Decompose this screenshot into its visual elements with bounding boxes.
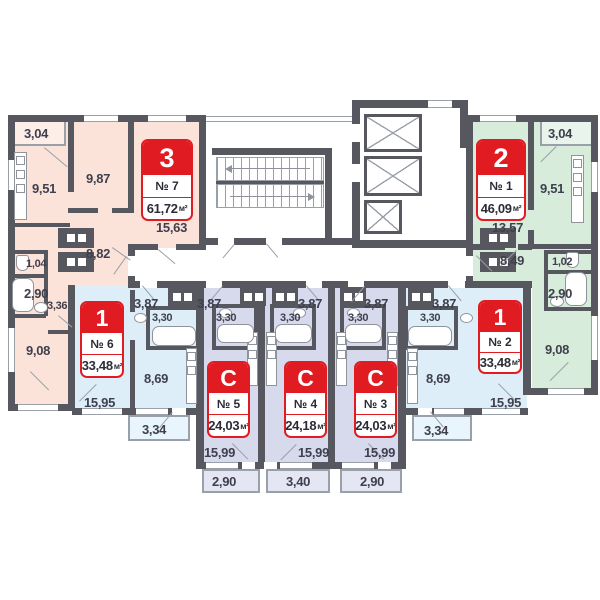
kitchen-counter [14,152,27,220]
wall [8,223,70,227]
bathtub [217,324,254,343]
window [434,408,464,415]
apartment-type: 1 [82,303,122,333]
canopy-line [206,121,352,122]
area-label-living-a4: 15,99 [298,446,329,459]
area-value: 33,48 [82,358,113,373]
wall [48,330,70,334]
area-unit: м² [512,357,521,367]
wall [212,148,327,155]
door-swing [158,249,176,264]
door-gap [466,256,473,276]
vent-shaft [58,228,94,248]
bathtub [408,326,452,346]
door-swing [266,243,279,258]
area-label-corr-a7: 3,36 [47,301,67,312]
area-label-hall-a5: 3,87 [197,297,221,310]
apartment-card-3[interactable]: С № 3 24,03м² [354,361,397,438]
apartment-area: 24,03м² [356,415,395,436]
wall [325,148,332,245]
elevator-shaft-3 [364,200,402,234]
apartment-area: 33,48м² [480,353,520,373]
floor-plan: 3,04 9,51 9,87 15,63 8,82 1,04 2,90 3,36… [0,0,600,600]
balcony-door-gap [242,462,255,469]
wall [544,250,548,310]
apartment-type: С [286,363,325,393]
area-unit: м² [240,421,249,431]
balcony-door-gap [378,462,391,469]
window [148,115,186,122]
stair-arrow-down [230,196,308,197]
area-label-kitchen-a2: 8,69 [426,372,450,385]
area-label-hall-a1: 8,49 [500,254,524,267]
canopy-line [206,116,352,117]
wall [130,340,135,408]
area-label-hall-a7: 8,82 [86,247,110,260]
apartment-number: № 3 [356,393,395,415]
apartment-card-4[interactable]: С № 4 24,18м² [284,361,327,438]
apartment-number: № 7 [143,175,191,198]
washbasin [134,313,147,323]
area-label-balcony-a2: 3,34 [424,424,448,437]
wall [328,283,335,464]
apartment-area: 33,48м² [82,355,122,376]
elevator-shaft-2 [364,156,422,196]
area-label-balcony-a4: 3,40 [286,475,310,488]
area-label-living-a1: 13,57 [492,221,523,234]
area-value: 46,09 [481,201,512,216]
window [480,115,516,122]
area-unit: м² [387,421,396,431]
area-unit: м² [513,203,522,213]
wall [460,100,468,148]
area-unit: м² [114,361,123,371]
area-value: 24,03 [208,418,239,433]
apartment-type: 3 [143,141,191,175]
door-swing [222,244,235,259]
wall [8,250,48,254]
area-label-bath-a3: 3,30 [348,313,368,324]
window [591,316,598,360]
wall [8,314,46,318]
apartment-card-2[interactable]: 1 № 2 33,48м² [478,300,522,374]
vent-shaft [168,287,196,306]
area-label-bath-a1: 2,90 [548,287,572,300]
area-label-room-a7: 9,08 [26,344,50,357]
area-label-bed-a7: 9,87 [86,172,110,185]
area-unit: м² [317,421,326,431]
apartment-card-1[interactable]: 2 № 1 46,09м² [476,139,526,221]
area-label-balcony-a1: 3,04 [548,127,572,140]
apartment-type: С [356,363,395,393]
area-value: 24,03 [355,418,386,433]
elevator-shaft-1 [364,114,422,152]
kitchen-counter [407,348,418,404]
window [548,388,584,395]
apartment-number: № 6 [82,333,122,355]
balcony-door-gap [264,462,277,469]
area-label-balcony-a7: 3,04 [24,127,48,140]
area-label-hall-a6: 3,87 [134,297,158,310]
apartment-card-7[interactable]: 3 № 7 61,72м² [141,139,193,221]
window [84,115,118,122]
washbasin [34,302,48,313]
area-unit: м² [179,203,188,213]
wall [68,285,75,411]
wall [68,122,74,192]
apartment-card-6[interactable]: 1 № 6 33,48м² [80,301,124,378]
window [8,328,15,372]
door-gap [218,238,234,245]
balcony-door-gap [172,408,186,415]
washbasin [460,313,473,323]
area-label-bath-a5: 3,30 [216,313,236,324]
wall [544,307,598,311]
kitchen-counter [571,155,584,223]
window [18,404,58,411]
window [206,462,238,469]
bathtub [345,324,382,343]
wall [532,244,598,249]
bathtub [152,326,196,346]
elevator-door-gap [352,124,360,142]
apartment-number: № 1 [478,175,524,198]
area-label-hall-a4: 3,87 [298,297,322,310]
apartment-area: 61,72м² [143,198,191,220]
wall [199,115,206,248]
area-label-bath-a7: 2,90 [24,287,48,300]
area-label-bath-a4: 3,30 [280,313,300,324]
stair-arrow-head [308,193,315,201]
elevator-door-gap [352,164,360,182]
apartment-type: С [209,363,248,393]
area-label-wc-a7: 1,04 [26,259,46,270]
area-label-bath-a2: 3,30 [420,313,440,324]
window [591,162,598,192]
apartment-area: 46,09м² [478,198,524,220]
area-label-hall-a2: 3,87 [432,297,456,310]
area-label-wc-a1: 1,02 [552,257,572,268]
area-label-living-a2: 15,95 [490,396,521,409]
wall [528,118,534,210]
vent-shaft [240,287,266,306]
wall [258,283,265,464]
apartment-number: № 4 [286,393,325,415]
area-value: 24,18 [285,418,316,433]
area-label-bath-a6: 3,30 [152,313,172,324]
vent-shaft [408,287,434,306]
stair-arrow-up [232,168,310,169]
wall [112,208,134,213]
area-label-balcony-a5: 2,90 [212,475,236,488]
wall [523,283,531,395]
area-value: 33,48 [480,355,511,370]
area-label-balcony-a3: 2,90 [360,475,384,488]
kitchen-counter [186,348,197,404]
window [136,408,168,415]
area-label-room-a1: 9,08 [545,343,569,356]
area-label-kitchen-a1: 9,51 [540,182,564,195]
apartment-number: № 2 [480,332,520,353]
entrance-door-gap [428,100,452,108]
apartment-area: 24,03м² [209,415,248,436]
area-label-balcony-a6: 3,34 [142,423,166,436]
wall [176,244,206,250]
apartment-type: 1 [480,302,520,332]
area-label-living-a7: 15,63 [156,221,187,234]
area-label-hall-a3: 3,87 [364,297,388,310]
area-label-kitchen-a7: 9,51 [32,182,56,195]
wall [68,208,98,213]
bathtub [275,324,312,343]
window [280,462,312,469]
apartment-number: № 5 [209,393,248,415]
apartment-card-5[interactable]: С № 5 24,03м² [207,361,250,438]
area-label-living-a6: 15,95 [84,396,115,409]
area-label-living-a3: 15,99 [364,446,395,459]
wall [352,240,468,248]
vent-shaft [272,287,298,306]
apartment-area: 24,18м² [286,415,325,436]
wall [128,118,134,210]
area-label-living-a5: 15,99 [204,446,235,459]
window [342,462,374,469]
stair-arrow-head [225,165,232,173]
area-value: 61,72 [147,201,178,216]
apartment-type: 2 [478,141,524,175]
area-label-kitchen-a6: 8,69 [144,372,168,385]
